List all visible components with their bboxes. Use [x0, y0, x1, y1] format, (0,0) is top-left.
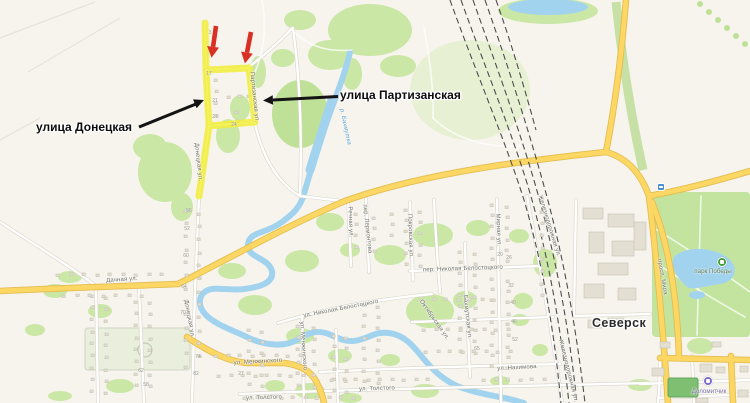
poi-label: парк Победы: [694, 268, 731, 275]
street-label: Железнодорожная ул.: [537, 194, 562, 257]
house-number: 21: [212, 98, 218, 104]
annotation-street-partizanska: улица Партизанская: [340, 88, 461, 102]
poi-glyph: [720, 260, 724, 264]
house-number: 27: [212, 114, 218, 120]
street-label: Дачная ул.: [106, 276, 138, 284]
house-number: 82: [193, 371, 199, 377]
house-number: 32: [508, 283, 514, 289]
street-label: Мирная ул.: [494, 214, 501, 247]
bus-glyph: [659, 186, 663, 189]
house-number: 40: [510, 300, 516, 306]
street-label: Октябрьская ул.: [418, 299, 450, 341]
house-number: 62: [138, 368, 144, 374]
house-number: 65: [474, 346, 480, 352]
map-canvas[interactable]: Дачная ул.Донецкая ул.Донецкая ул.Партиз…: [0, 0, 750, 403]
poi-glyph: [706, 379, 710, 383]
river-label: р. Бахмутка: [338, 108, 351, 145]
house-number: 24: [231, 122, 237, 128]
house-number: 70: [180, 310, 186, 316]
street-label: Партизанская ул.: [248, 71, 259, 122]
street-label: ул. Нахимова: [497, 364, 537, 372]
house-number: 52: [184, 226, 190, 232]
house-number: 20: [497, 252, 503, 258]
poi-label: Доломитчик: [692, 388, 727, 395]
street-label: Донецкая ул.: [193, 143, 203, 182]
house-number: 17: [206, 71, 212, 77]
house-number: 52: [512, 337, 518, 343]
house-number: 27: [238, 371, 244, 377]
sport-icon[interactable]: [703, 376, 713, 386]
annotation-street-donetska: улица Донецкая: [36, 120, 132, 134]
street-label: ул. Толстого: [359, 385, 395, 392]
labels-layer: Дачная ул.Донецкая ул.Донецкая ул.Партиз…: [0, 0, 750, 403]
street-label: просп. Мира: [656, 259, 668, 296]
house-number: 60: [183, 253, 189, 259]
street-label: ул. Менжинского: [234, 358, 283, 367]
street-label: Донецкая ул.: [183, 300, 196, 339]
bus-stop-icon[interactable]: [657, 183, 665, 191]
street-label: Бахмутская ул.: [462, 295, 473, 340]
street-label: Речная ул.: [346, 206, 353, 237]
street-label: пер. Николая Белостоцкого: [423, 265, 503, 274]
street-label: Железнодорожная ул.: [557, 339, 578, 403]
house-number: 46: [511, 319, 517, 325]
street-label: Покровская ул.: [406, 214, 414, 258]
house-number: 56: [186, 208, 192, 214]
house-number: 64: [181, 284, 187, 290]
house-number: 58: [143, 382, 149, 388]
house-number: 3: [209, 30, 212, 36]
street-label: пер. Лермонтова: [361, 204, 372, 254]
house-number: 74: [195, 354, 201, 360]
street-label: ул. Менжинского: [298, 322, 307, 371]
house-number: 26: [506, 255, 512, 261]
park-icon[interactable]: [717, 257, 727, 267]
street-label: ул. Толстого: [246, 394, 282, 401]
street-label: ул. Николая Белостоцкого: [303, 299, 379, 319]
city-label: Северск: [592, 316, 646, 330]
